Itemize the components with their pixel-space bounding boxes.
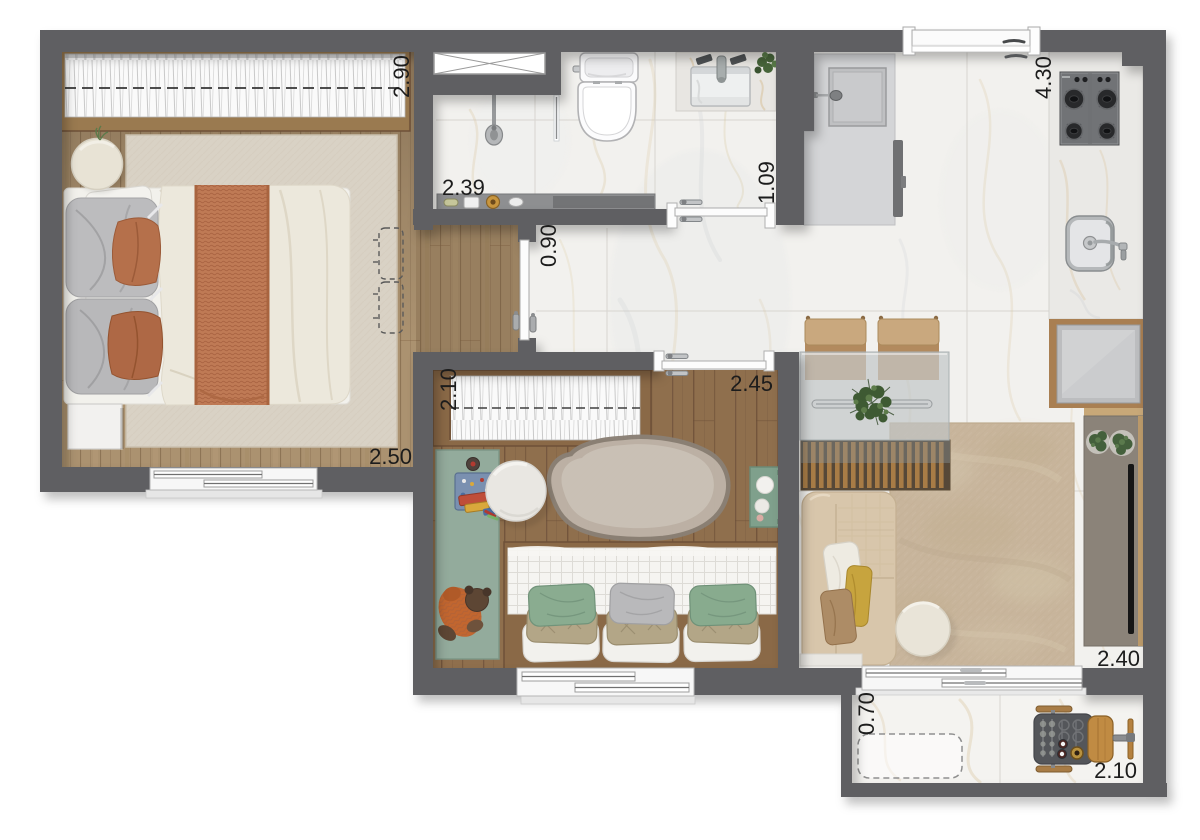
svg-text:2.40: 2.40: [1097, 646, 1140, 671]
svg-text:2.10: 2.10: [436, 368, 461, 411]
svg-text:0.90: 0.90: [536, 224, 561, 267]
svg-text:4.30: 4.30: [1031, 56, 1056, 99]
svg-text:0.70: 0.70: [854, 692, 879, 735]
svg-text:2.39: 2.39: [442, 175, 485, 200]
svg-text:2.45: 2.45: [730, 371, 773, 396]
svg-text:2.10: 2.10: [1094, 758, 1137, 783]
svg-text:2.50: 2.50: [369, 444, 412, 469]
svg-text:1.09: 1.09: [754, 161, 779, 204]
svg-text:2.90: 2.90: [389, 55, 414, 98]
